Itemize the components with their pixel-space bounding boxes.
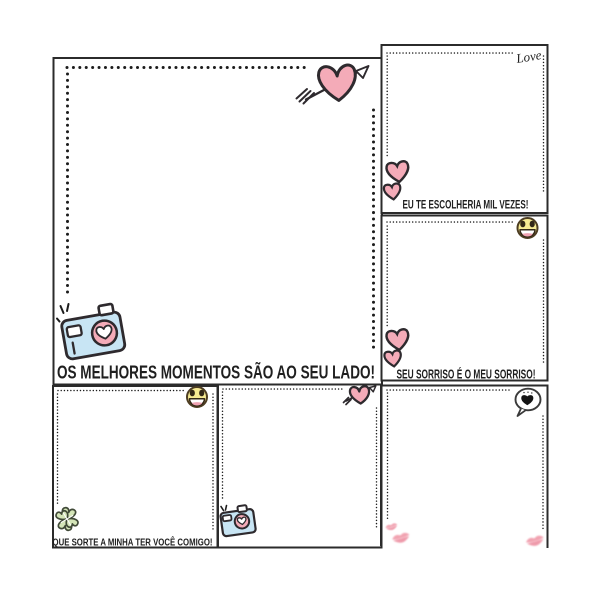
svg-text:SEU SORRISO É O MEU SORRISO!: SEU SORRISO É O MEU SORRISO! [397, 367, 536, 382]
svg-text:OS MELHORES MOMENTOS SÃO AO SE: OS MELHORES MOMENTOS SÃO AO SEU LADO! [57, 362, 375, 383]
svg-text:QUE SORTE A MINHA TER VOCÊ COM: QUE SORTE A MINHA TER VOCÊ COMIGO! [53, 536, 213, 549]
svg-text:EU TE ESCOLHERIA MIL VEZES!: EU TE ESCOLHERIA MIL VEZES! [403, 200, 529, 212]
